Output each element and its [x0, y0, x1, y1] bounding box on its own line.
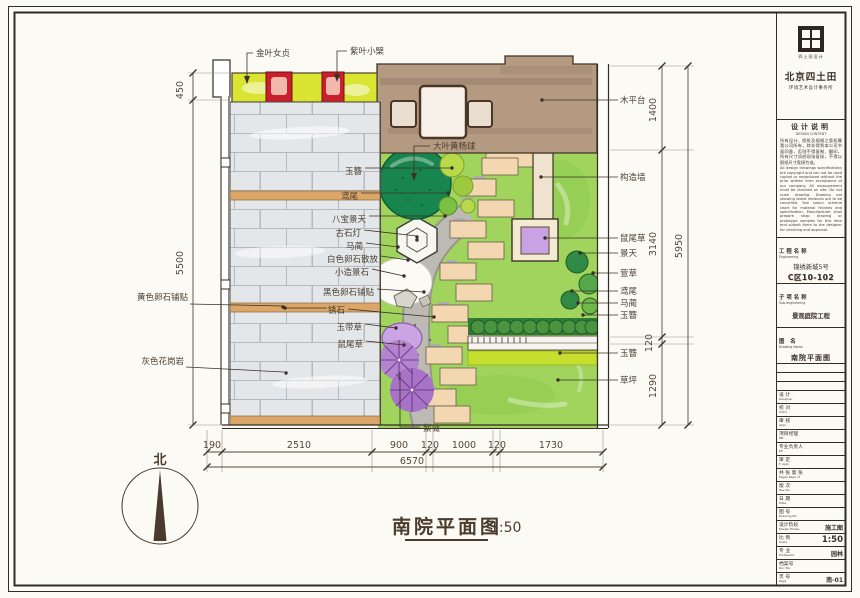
label-purple-barberry: 紫叶小檗 [350, 46, 385, 57]
label-white-pebbles: 白色卵石散放 [327, 254, 379, 265]
row-profession: 专 业Profession园林 [777, 546, 845, 559]
deck-chair-right [468, 101, 492, 127]
company-logo-text: 四土田设计 [777, 54, 845, 60]
corner-column [213, 60, 230, 97]
label-wood-deck: 木平台 [620, 95, 646, 106]
structural-wall-strip [533, 153, 553, 221]
dim-bottom-2510: 2510 [287, 440, 311, 451]
dim-right-3140: 3140 [648, 232, 659, 256]
hedge-row-shrubs [471, 320, 599, 334]
row-design-phase: 设计阶段Design Phase施工图 [777, 520, 845, 533]
label-iris-lactea-left: 马蔺 [346, 241, 364, 252]
dim-right-1400: 1400 [648, 98, 659, 122]
deck-chair-left [391, 101, 416, 127]
sub-project-section: 子项名称 Sub-engineering 景观庭院工程 [777, 283, 845, 327]
north-label: 北 [153, 453, 166, 468]
row-project-manager: 项目经理PM [777, 429, 845, 442]
label-boxwood-ball: 大叶黄杨球 [433, 141, 476, 152]
project-label-en: Engineering [779, 256, 843, 259]
plan-drawing-canvas: 金叶女贞 紫叶小檗 黄色卵石铺贴 灰色花岗岩 玉簪 鸢尾 八宝景天 古石灯 马蔺… [0, 0, 860, 598]
drawing-sheet: 金叶女贞 紫叶小檗 黄色卵石铺贴 灰色花岗岩 玉簪 鸢尾 八宝景天 古石灯 马蔺… [0, 0, 860, 598]
label-small-feature-rock: 小造景石 [335, 267, 369, 278]
project-name: 锦绣新城5号 [777, 262, 845, 271]
empty-row [777, 372, 845, 381]
label-hosta-right-1: 玉簪 [620, 310, 638, 321]
drawing-name: 南院平面图 [777, 353, 845, 363]
dim-left-450: 450 [175, 81, 186, 99]
label-rust-stone: 锈石 [328, 305, 345, 316]
row-revision: 版 次Rev No. [777, 481, 845, 494]
dim-right-120: 120 [644, 334, 655, 352]
dim-bottom-total-6570: 6570 [400, 456, 424, 467]
label-ribbon-grass: 玉带草 [336, 322, 362, 333]
label-hosta-right-2: 玉簪 [620, 348, 638, 359]
label-daylily: 萱草 [620, 268, 638, 279]
company-subtitle: 环境艺术设计事务所 [777, 85, 845, 91]
plan-title-group: 南院平面图 1:50 [392, 515, 521, 540]
row-final-approval: 审 定F. Appr [777, 455, 845, 468]
project-code: C区10-102 [777, 272, 845, 283]
row-discipline-lead: 专业负责人PP [777, 442, 845, 455]
deck-table [420, 86, 466, 138]
label-lawn: 草坪 [620, 375, 638, 386]
sub-project-label-en: Sub-engineering [779, 302, 843, 305]
signature-rows: 设 计Designer 校 对Chkd 审 核Appr 项目经理PM 专业负责人… [777, 390, 845, 585]
row-doc-no: 档案号Doc No. [777, 559, 845, 572]
label-stone-lantern: 古石灯 [335, 228, 361, 239]
label-structural-wall: 构造墙 [620, 172, 646, 183]
label-sedum-right: 景天 [620, 249, 638, 259]
north-arrow: 北 [122, 453, 198, 544]
label-golden-privet: 金叶女贞 [256, 48, 290, 59]
dim-right-1290: 1290 [648, 374, 659, 398]
privet-hedge-strip [232, 72, 377, 102]
dim-bottom-120a: 120 [421, 440, 439, 451]
row-drawing-no: 图 号Drawing No. [777, 507, 845, 520]
dim-bottom-120b: 120 [488, 440, 506, 451]
label-iris-lactea-right: 马蔺 [620, 298, 638, 309]
design-notes-en: All design drawings specifications are c… [777, 166, 845, 232]
row-approved: 审 核Appr [777, 416, 845, 429]
empty-row [777, 381, 845, 390]
label-black-pebble-paving: 黑色卵石铺贴 [323, 287, 375, 298]
design-notes-section: 设计说明 DESIGN CONTENT 所有设计、图纸及规格之版权属我公司所有，… [777, 119, 845, 237]
row-date: 日 期Date [777, 494, 845, 507]
project-name-section: 工程名称 Engineering 锦绣新城5号 C区10-102 [777, 237, 845, 283]
dim-bottom-190: 190 [203, 440, 221, 451]
rust-stone-band-3 [230, 416, 380, 425]
sub-project-name: 景观庭院工程 [777, 311, 845, 320]
dim-left-5500: 5500 [175, 251, 186, 275]
label-crape-myrtle: 紫薇 [423, 423, 441, 434]
plan-title: 南院平面图 [392, 515, 502, 538]
title-block-company-section: 四土田设计 北京四土田 环境艺术设计事务所 [777, 13, 845, 119]
dim-bottom-900: 900 [390, 440, 408, 451]
north-arrow-needle [154, 470, 167, 541]
label-gray-granite: 灰色花岗岩 [141, 356, 184, 367]
rust-stone-band-2 [230, 303, 380, 312]
title-block: 四土田设计 北京四土田 环境艺术设计事务所 设计说明 DESIGN CONTEN… [776, 13, 845, 585]
row-checked: 校 对Chkd [777, 403, 845, 416]
drawing-name-section: 图 名 Drawing Name 南院平面图 [777, 327, 845, 363]
row-designer: 设 计Designer [777, 390, 845, 403]
label-sage-right: 鼠尾草 [620, 233, 646, 244]
wood-deck [377, 56, 597, 153]
design-notes-cn: 所有设计、图纸及规格之版权属我公司所有，除非得到本公司书面同意，否则不得复制、翻… [777, 137, 845, 166]
drawing-name-label-en: Drawing Name [779, 346, 843, 349]
label-hosta-left: 玉簪 [345, 166, 363, 177]
dim-bottom-1000: 1000 [452, 440, 476, 451]
plan-scale: 1:50 [490, 520, 521, 536]
company-logo-icon [798, 26, 824, 52]
dim-right-total-5950: 5950 [674, 234, 685, 258]
design-notes-title: 设计说明 [777, 122, 845, 132]
company-name: 北京四土田 [777, 69, 845, 83]
row-scale: 比 例Scale1:50 [777, 533, 845, 546]
row-page-no: 页 号Page南-01 [777, 572, 845, 585]
label-sage-left: 鼠尾草 [337, 339, 363, 350]
row-pages: 共 张 第 张Pages Page of [777, 468, 845, 481]
dim-bottom-1730: 1730 [539, 440, 563, 451]
label-yellow-pebble-paving: 黄色卵石铺贴 [137, 292, 189, 303]
label-iris-left: 鸢尾 [341, 191, 359, 202]
design-notes-title-en: DESIGN CONTENT [777, 132, 845, 136]
empty-row [777, 363, 845, 372]
label-sedum-spectabile: 八宝景天 [332, 214, 367, 225]
planter-purple-fill [521, 227, 549, 254]
label-iris-right: 鸢尾 [620, 286, 638, 297]
